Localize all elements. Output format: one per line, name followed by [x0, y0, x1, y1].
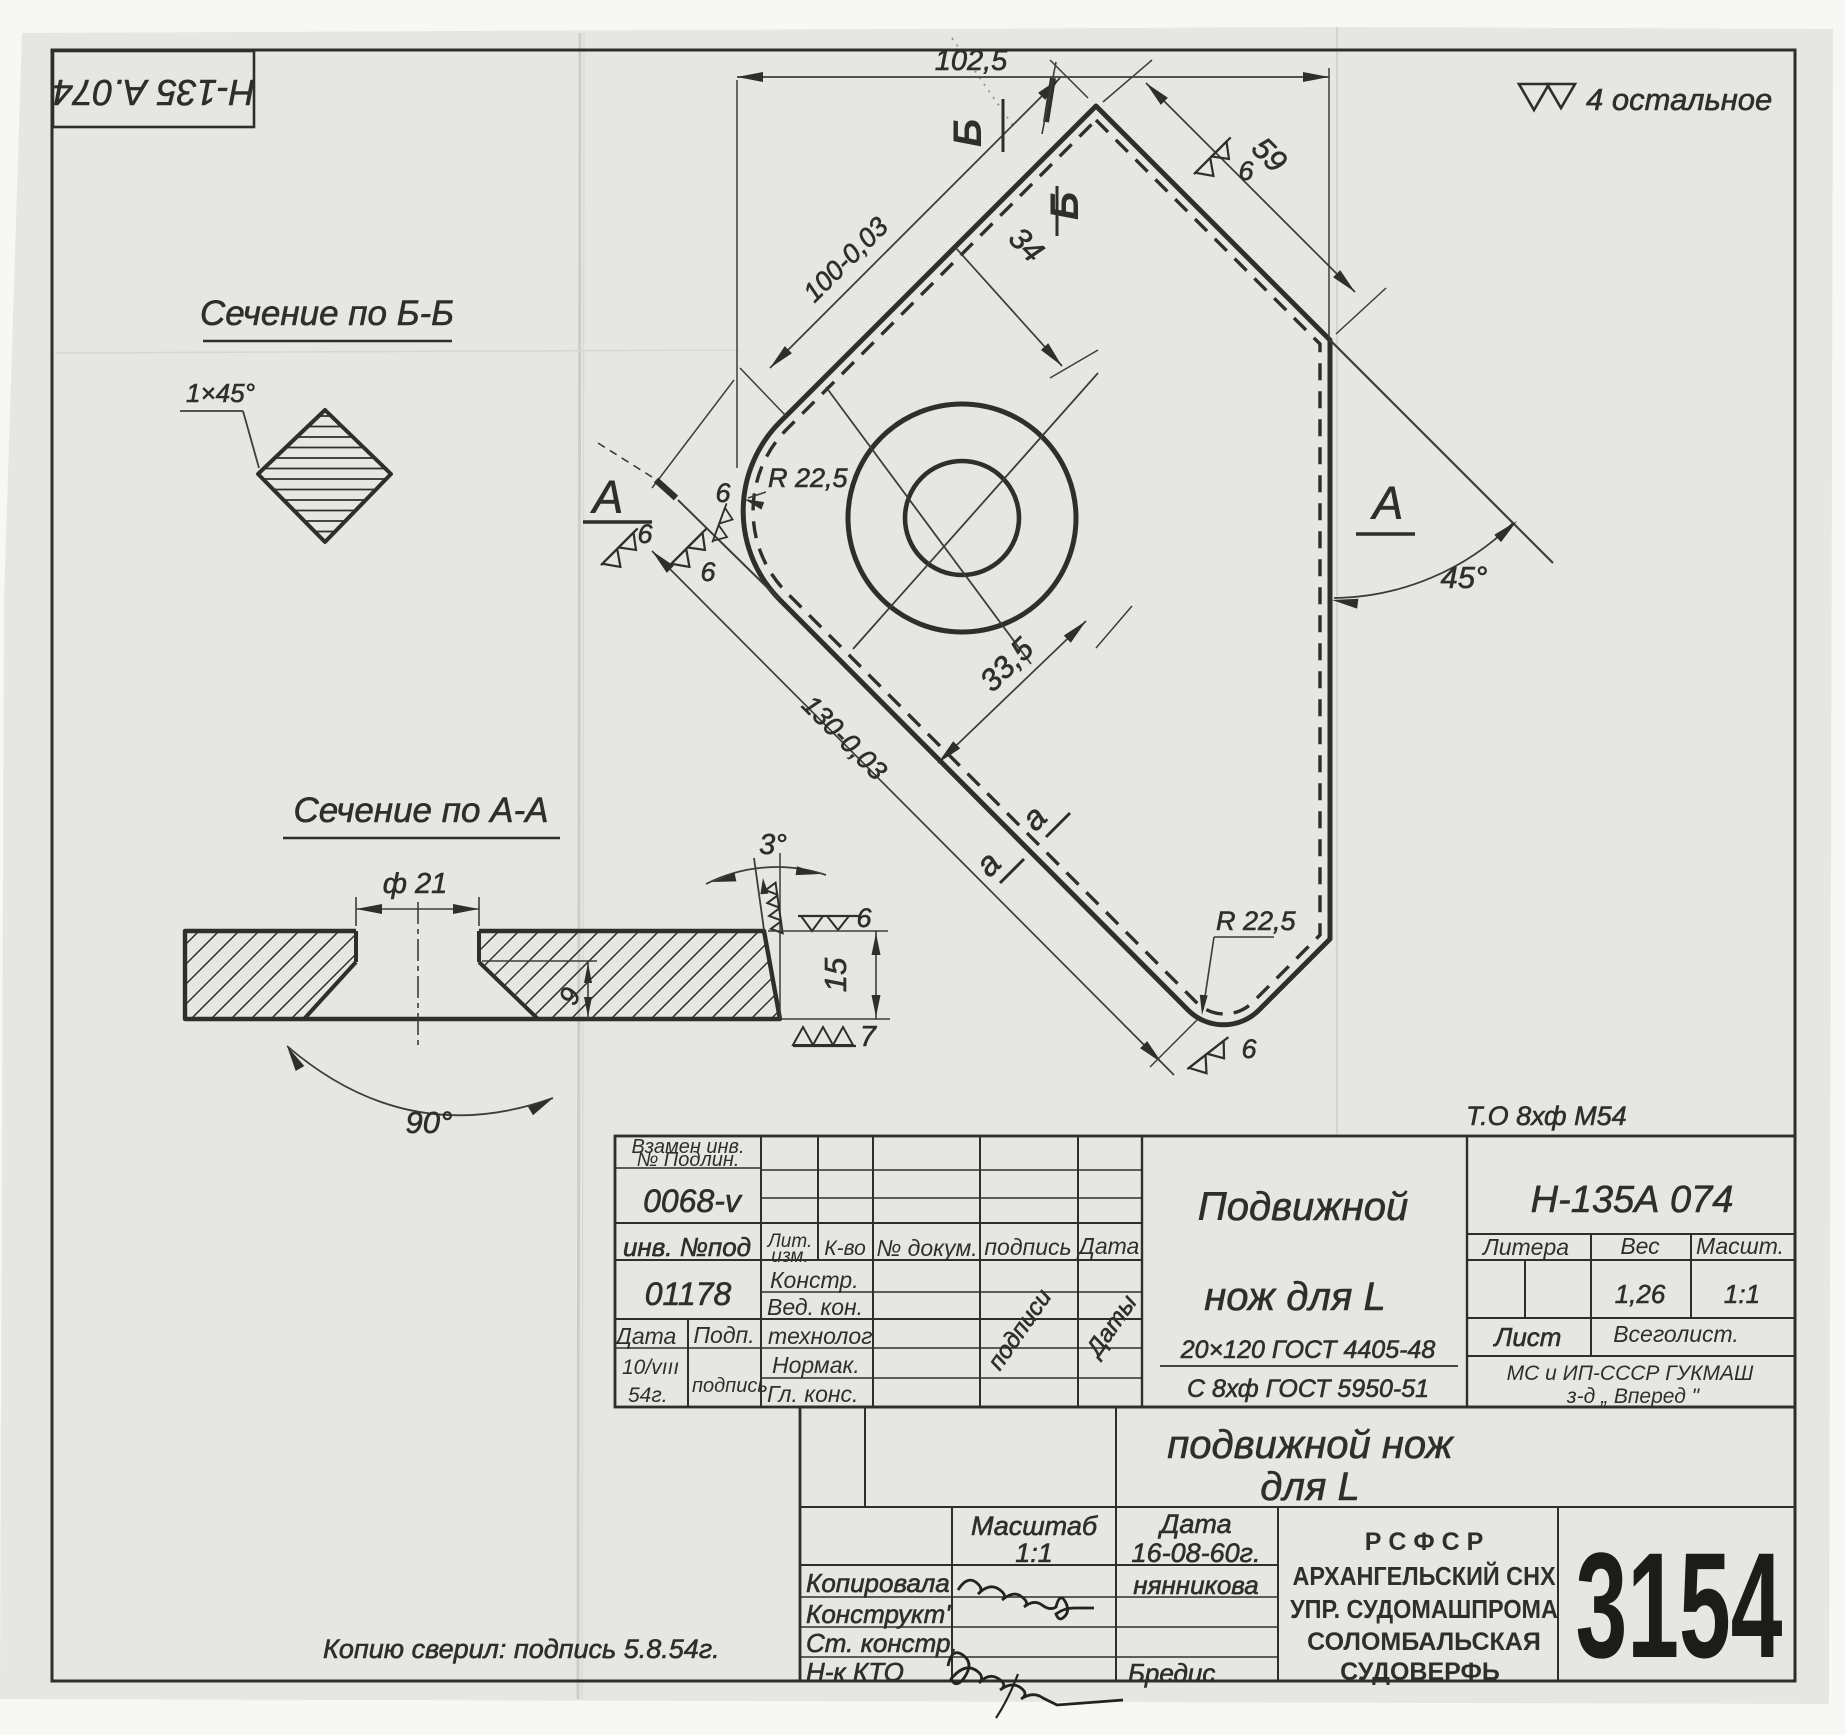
- svg-text:90°: 90°: [406, 1105, 453, 1140]
- svg-text:6: 6: [715, 478, 731, 508]
- svg-text:Подп.: Подп.: [693, 1322, 754, 1348]
- svg-text:изм.: изм.: [771, 1246, 809, 1267]
- svg-text:3°: 3°: [759, 829, 787, 861]
- svg-text:Копию сверил: подпись 5.8.54г.: Копию сверил: подпись 5.8.54г.: [323, 1634, 720, 1664]
- svg-text:Гл. конс.: Гл. конс.: [767, 1381, 858, 1407]
- svg-text:6: 6: [637, 519, 653, 549]
- svg-text:подвижной нож: подвижной нож: [1167, 1423, 1454, 1467]
- svg-text:7: 7: [860, 1021, 878, 1053]
- svg-text:R 22,5: R 22,5: [768, 463, 849, 493]
- svg-text:Лист: Лист: [1493, 1322, 1562, 1352]
- svg-text:6: 6: [856, 903, 872, 933]
- svg-text:6: 6: [700, 557, 716, 587]
- svg-text:К-во: К-во: [824, 1237, 866, 1260]
- svg-text:№ Подлин.: № Подлин.: [637, 1149, 740, 1171]
- svg-text:А: А: [1370, 477, 1404, 529]
- svg-text:4 остальное: 4 остальное: [1586, 82, 1772, 117]
- svg-text:01178: 01178: [645, 1276, 732, 1312]
- svg-text:Сечение по А-А: Сечение по А-А: [293, 791, 548, 830]
- svg-text:Дата: Дата: [1076, 1233, 1140, 1259]
- svg-text:Т.О 8хф М54: Т.О 8хф М54: [1466, 1101, 1627, 1131]
- svg-text:Масштаб: Масштаб: [971, 1511, 1098, 1541]
- svg-text:Дата: Дата: [613, 1323, 677, 1349]
- svg-text:АРХАНГЕЛЬСКИЙ СНХ: АРХАНГЕЛЬСКИЙ СНХ: [1292, 1562, 1556, 1591]
- svg-text:Сечение по Б-Б: Сечение по Б-Б: [200, 294, 454, 333]
- svg-text:Констр.: Констр.: [770, 1267, 859, 1293]
- svg-text:Б: Б: [1043, 192, 1087, 220]
- svg-text:3154: 3154: [1576, 1522, 1783, 1689]
- svg-text:инв. №под: инв. №под: [623, 1232, 751, 1262]
- svg-text:ф 21: ф 21: [383, 868, 448, 900]
- svg-text:А: А: [590, 471, 624, 523]
- svg-text:Дата: Дата: [1157, 1509, 1231, 1539]
- svg-text:СУДОВЕРФЬ: СУДОВЕРФЬ: [1340, 1658, 1500, 1686]
- svg-text:Бредис: Бредис: [1128, 1658, 1215, 1688]
- svg-text:6: 6: [1241, 1034, 1257, 1064]
- svg-text:20×120 ГОСТ 4405-48: 20×120 ГОСТ 4405-48: [1180, 1336, 1436, 1364]
- svg-text:Литера: Литера: [1481, 1234, 1569, 1260]
- svg-text:1×45°: 1×45°: [186, 378, 255, 408]
- svg-text:Всеголист.: Всеголист.: [1613, 1321, 1739, 1347]
- svg-text:0068-v: 0068-v: [643, 1183, 743, 1219]
- svg-text:Р С Ф С Р: Р С Ф С Р: [1365, 1528, 1484, 1556]
- svg-text:з-д „ Вперед ": з-д „ Вперед ": [1566, 1385, 1701, 1408]
- svg-text:Б: Б: [946, 119, 990, 147]
- svg-text:R 22,5: R 22,5: [1216, 906, 1297, 936]
- svg-text:Ст. констр.: Ст. констр.: [806, 1628, 958, 1658]
- svg-text:МС и ИП-СССР ГУКМАШ: МС и ИП-СССР ГУКМАШ: [1507, 1362, 1754, 1385]
- svg-text:нож для L: нож для L: [1204, 1275, 1385, 1319]
- svg-text:Н-к КТО: Н-к КТО: [806, 1657, 904, 1687]
- svg-text:С 8хф ГОСТ 5950-51: С 8хф ГОСТ 5950-51: [1187, 1375, 1429, 1403]
- svg-text:Вес: Вес: [1620, 1233, 1660, 1259]
- svg-text:15: 15: [818, 957, 853, 992]
- svg-text:102,5: 102,5: [935, 45, 1008, 77]
- svg-text:Вед. кон.: Вед. кон.: [767, 1294, 863, 1320]
- svg-text:подпись: подпись: [984, 1234, 1071, 1260]
- svg-text:нянникова: нянникова: [1133, 1570, 1258, 1600]
- svg-text:для L: для L: [1260, 1465, 1359, 1509]
- svg-text:подпись: подпись: [692, 1375, 768, 1397]
- svg-text:1,26: 1,26: [1615, 1279, 1666, 1309]
- svg-text:45°: 45°: [1441, 560, 1488, 595]
- svg-text:6: 6: [1238, 156, 1254, 186]
- svg-text:Копировала: Копировала: [806, 1568, 950, 1598]
- svg-text:технолог: технолог: [768, 1323, 873, 1349]
- svg-text:54г.: 54г.: [628, 1384, 668, 1407]
- svg-text:Нормак.: Нормак.: [772, 1352, 860, 1378]
- svg-text:1:1: 1:1: [1724, 1279, 1760, 1309]
- svg-text:16-08-60г.: 16-08-60г.: [1132, 1538, 1261, 1568]
- svg-text:№ докум.: № докум.: [876, 1235, 977, 1261]
- svg-text:Н-135А 074: Н-135А 074: [1531, 1179, 1734, 1221]
- svg-text:СОЛОМБАЛЬСКАЯ: СОЛОМБАЛЬСКАЯ: [1307, 1628, 1541, 1656]
- svg-text:Подвижной: Подвижной: [1198, 1185, 1409, 1229]
- svg-text:Н-135 А.074: Н-135 А.074: [53, 72, 255, 113]
- svg-text:Конструкт': Конструкт': [806, 1599, 951, 1629]
- svg-text:10/vııı: 10/vııı: [622, 1356, 679, 1379]
- svg-text:1:1: 1:1: [1015, 1538, 1053, 1568]
- svg-text:УПР. СУДОМАШПРОМА: УПР. СУДОМАШПРОМА: [1290, 1596, 1558, 1624]
- svg-text:Масшт.: Масшт.: [1696, 1233, 1784, 1259]
